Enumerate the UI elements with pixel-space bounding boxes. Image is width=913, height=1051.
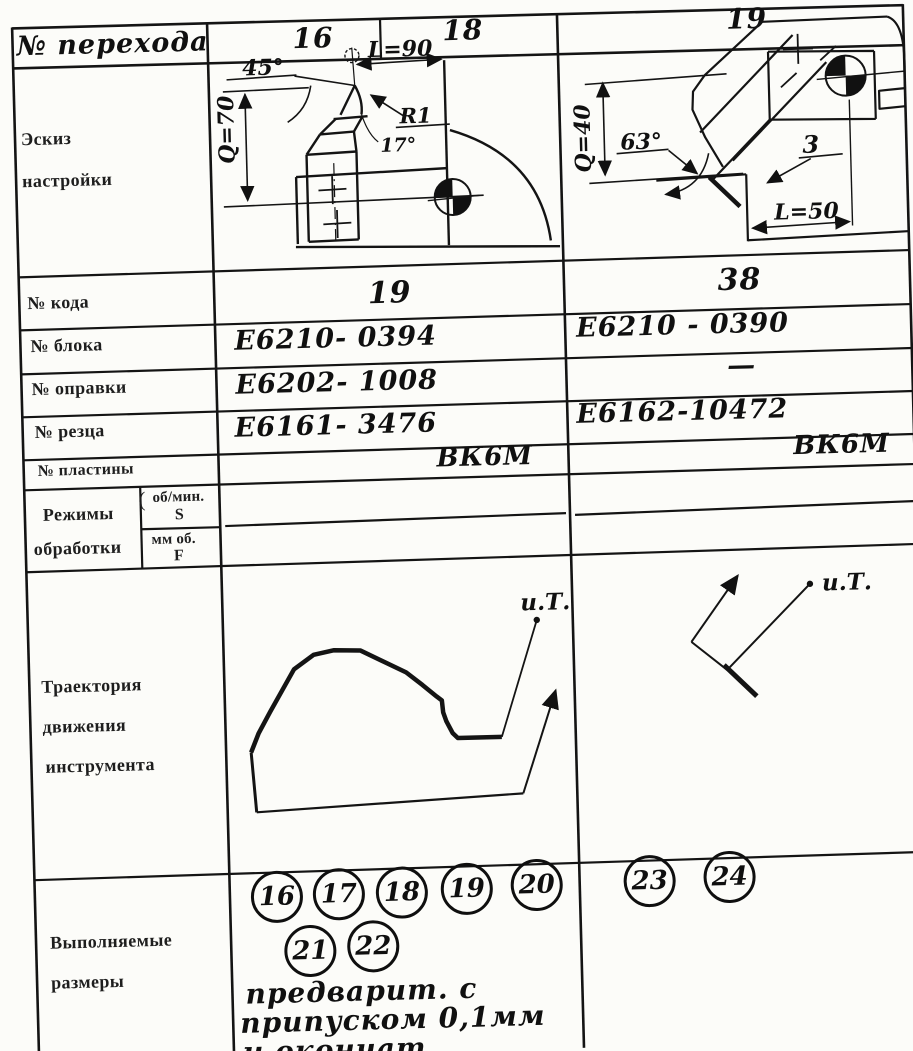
setup-sketch-col1: 45° L=90 Q=70 R1 17°: [208, 37, 564, 271]
modes-brace: (: [138, 487, 146, 512]
scanned-process-card: № перехода 16 18 19 Эскиз настройки № ко…: [0, 0, 913, 1051]
dimension-number: 16: [258, 881, 295, 912]
datum-target-icon: [427, 178, 480, 215]
dimension-number: 24: [711, 862, 748, 893]
dimension-number: 18: [383, 877, 420, 908]
dimension-number: 19: [448, 873, 485, 904]
dimensions-label-line1: Выполняемые: [50, 930, 173, 954]
field-label-cutter: № резца: [34, 420, 105, 443]
start-point-label-col2: и.Т.: [822, 568, 873, 596]
dimension-number: 22: [355, 931, 392, 962]
sketch2-dimensions: Q=40 63° 3 L=50: [569, 71, 853, 233]
insert-value-col2: ВК6М: [793, 429, 890, 462]
angle-17-label: 17°: [380, 134, 417, 157]
feed-unit-label: мм об.: [151, 531, 196, 549]
dimension-number: 23: [631, 866, 668, 897]
transition-row-label: № перехода: [16, 26, 209, 62]
insert-value-col1: ВК6М: [436, 441, 533, 474]
start-point-label-col1: и.Т.: [520, 588, 571, 616]
block-value-col2: Е6210 - 0390: [576, 307, 790, 344]
q40-label: Q=40: [569, 103, 597, 173]
dimension-number: 21: [292, 936, 329, 967]
modes-label-line2: обработки: [33, 537, 121, 560]
card-sheet: № перехода 16 18 19 Эскиз настройки № ко…: [0, 0, 913, 1051]
q70-label: Q=70: [213, 95, 241, 165]
cutter-value-col2: Е6162-10472: [576, 393, 789, 430]
cutter-value-col1: Е6161- 3476: [234, 407, 437, 443]
field-label-code: № кода: [27, 292, 89, 315]
mandrel-value-col1: Е6202- 1008: [235, 364, 438, 400]
setup-sketch-col2: Q=40 63° 3 L=50: [557, 12, 913, 262]
spindle-symbol: S: [175, 506, 185, 524]
spindle-unit-label: об/мин.: [152, 489, 204, 507]
field-label-block: № блока: [30, 334, 103, 357]
trajectory-start-dot: [534, 617, 541, 624]
trajectory-label-line1: Траектория: [41, 674, 142, 698]
trajectory-label-line2: движения: [42, 715, 126, 738]
offset-3-label: 3: [802, 129, 819, 158]
modes-label-line1: Режимы: [43, 503, 114, 526]
block-value-col1: Е6210- 0394: [234, 320, 437, 356]
field-label-insert: № пластины: [38, 460, 135, 481]
sketch-label-line2: настройки: [22, 169, 113, 192]
dimensions-label-line2: размеры: [51, 971, 125, 994]
dimension-number: 20: [518, 870, 555, 901]
field-label-mandrel: № оправки: [31, 377, 127, 400]
feed-symbol: F: [174, 547, 185, 565]
sketch-label-line1: Эскиз: [21, 128, 72, 150]
dimension-number: 17: [320, 879, 357, 910]
length-50-label: L=50: [773, 198, 840, 226]
tool-path-col2: и.Т.: [571, 548, 913, 865]
tool-path-profile: [249, 646, 503, 753]
length-90-label: L=90: [366, 35, 433, 63]
tool-path-col1: и.Т.: [221, 557, 579, 874]
trajectory-label-line3: инструмента: [45, 754, 155, 778]
